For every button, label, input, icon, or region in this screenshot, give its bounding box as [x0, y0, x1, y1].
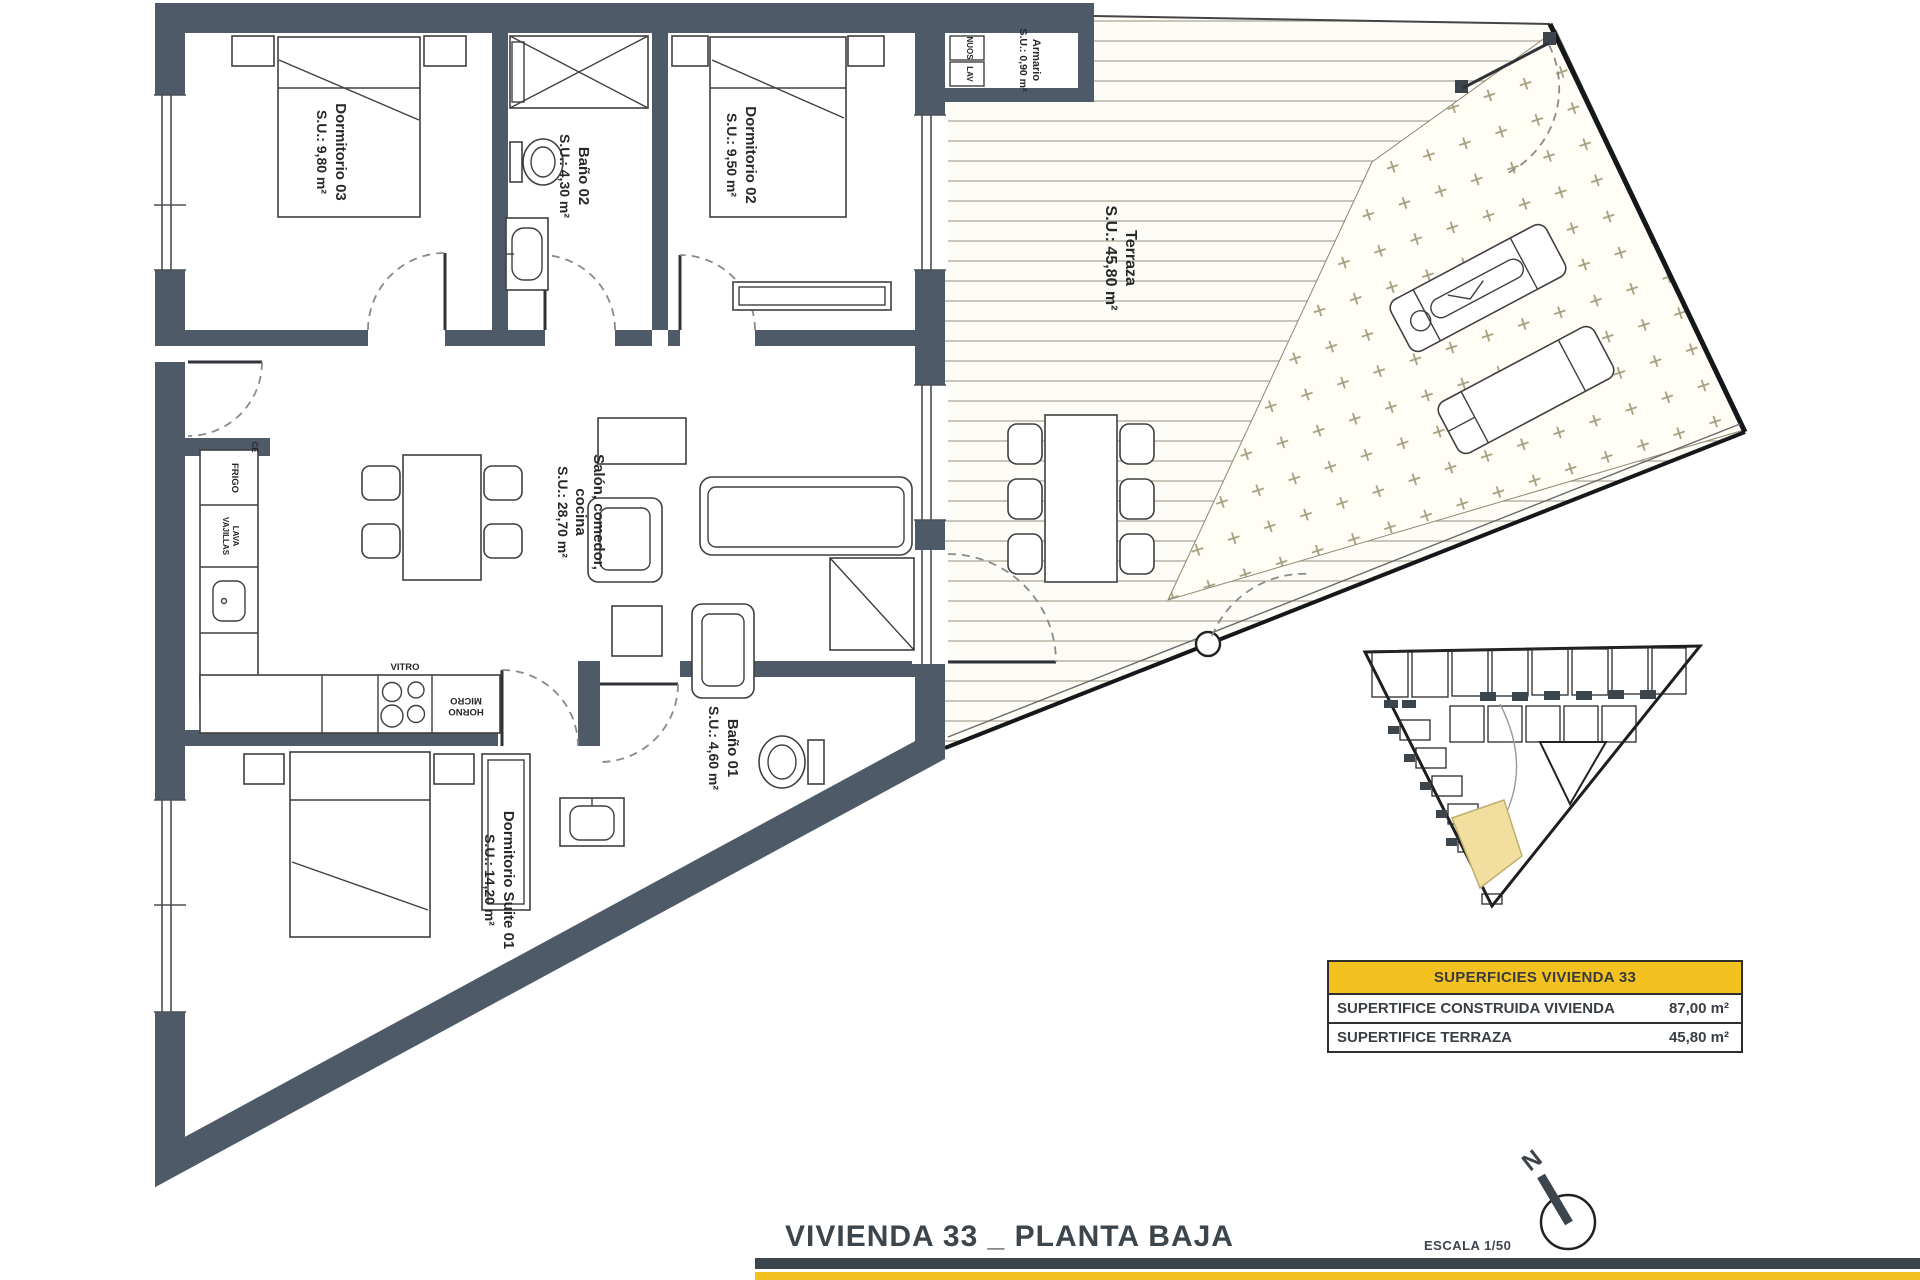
- surfaces-table: SUPERFICIES VIVIENDA 33 SUPERTIFICE CONS…: [1327, 960, 1743, 1053]
- table-row: SUPERTIFICE CONSTRUIDA VIVIENDA 87,00 m²: [1329, 995, 1741, 1024]
- lavavajillas-label-1: LAVA: [231, 526, 240, 547]
- svg-text:S.U.: 28,70 m²: S.U.: 28,70 m²: [555, 466, 571, 558]
- north-arrow-icon: N: [1517, 1145, 1595, 1249]
- terrace: Terraza S.U.: 45,80 m²: [945, 16, 1745, 748]
- nightstand: [848, 36, 884, 66]
- nuos-label: NUOS: [965, 36, 974, 60]
- horno-label-2: MICRO: [450, 695, 482, 706]
- svg-text:Armario: Armario: [1030, 39, 1042, 81]
- north-letter: N: [1517, 1145, 1547, 1177]
- window-dorm02-terrace: [912, 115, 948, 270]
- suite-wall-jog: [578, 661, 600, 746]
- svg-text:Baño 01: Baño 01: [724, 719, 741, 777]
- hall-wall: [445, 330, 545, 346]
- surface-value: 87,00 m²: [1669, 1000, 1729, 1017]
- title-accent-bar: [755, 1272, 1920, 1280]
- wall-bano02-dorm02: [652, 18, 668, 330]
- svg-text:Dormitorio 03: Dormitorio 03: [332, 103, 349, 201]
- toilet-icon: [510, 139, 563, 185]
- svg-text:cocina: cocina: [572, 488, 589, 536]
- bed: [290, 752, 430, 937]
- svg-text:S.U.: 4,30 m²: S.U.: 4,30 m²: [557, 134, 573, 218]
- surface-label: SUPERTIFICE CONSTRUIDA VIVIENDA: [1337, 1000, 1615, 1017]
- svg-text:S.U.: 14,20 m²: S.U.: 14,20 m²: [482, 834, 498, 926]
- terrace-dining-set: [1008, 415, 1154, 582]
- vitro-label: VITRO: [390, 662, 419, 673]
- window-suite: [152, 800, 188, 1012]
- coffee-table: [598, 418, 686, 464]
- sink-icon: [506, 218, 548, 290]
- shower-icon: [510, 36, 648, 108]
- sink-icon: [560, 798, 624, 846]
- hall-wall: [185, 330, 368, 346]
- terrace-name: Terraza: [1122, 230, 1139, 286]
- surface-value: 45,80 m²: [1669, 1029, 1729, 1046]
- surface-label: SUPERTIFICE TERRAZA: [1337, 1029, 1512, 1046]
- floor-plan-sheet: Terraza S.U.: 45,80 m² NUOS LAV Armario: [0, 0, 1920, 1280]
- sheet-title: VIVIENDA 33 _ PLANTA BAJA: [785, 1220, 1234, 1254]
- svg-text:S.U.: 9,80 m²: S.U.: 9,80 m²: [314, 110, 330, 194]
- svg-text:S.U.: 9,50 m²: S.U.: 9,50 m²: [724, 113, 740, 197]
- hall-wall: [668, 330, 680, 346]
- lavavajillas-label-2: VAJILLAS: [221, 517, 230, 556]
- svg-text:S.U.: 0,90 m²: S.U.: 0,90 m²: [1017, 28, 1029, 92]
- toilet-icon: [759, 736, 824, 788]
- svg-text:S.U.: 4,60 m²: S.U.: 4,60 m²: [706, 706, 722, 790]
- sofa: [700, 477, 912, 555]
- terrace-area: S.U.: 45,80 m²: [1102, 206, 1119, 311]
- site-key-plan: [1365, 646, 1700, 906]
- nightstand: [232, 36, 274, 66]
- surfaces-table-header: SUPERFICIES VIVIENDA 33: [1329, 962, 1741, 995]
- dresser: [733, 282, 891, 310]
- horno-label-1: HORNO: [448, 706, 483, 717]
- hall-wall: [615, 330, 652, 346]
- nightstand: [672, 36, 708, 66]
- title-divider-bar: [755, 1258, 1920, 1269]
- terrace-drain-circle: [1196, 632, 1220, 656]
- ce-label: CE: [250, 441, 259, 453]
- armchair: [692, 604, 754, 698]
- hall-wall: [755, 330, 915, 346]
- window-dorm03: [152, 95, 188, 270]
- entrance-opening: [152, 346, 188, 362]
- lav-label: LAV: [965, 66, 974, 82]
- side-table: [612, 606, 662, 656]
- svg-text:Salón, comedor,: Salón, comedor,: [590, 454, 607, 570]
- nightstand: [424, 36, 466, 66]
- svg-text:Baño 02: Baño 02: [575, 147, 592, 205]
- armario-room: NUOS LAV Armario S.U.: 0,90 m²: [930, 3, 1094, 102]
- svg-text:Dormitorio 02: Dormitorio 02: [742, 106, 759, 204]
- door-salon-terrace-opening: [912, 550, 948, 664]
- svg-text:Dormitorio Suite 01: Dormitorio Suite 01: [500, 811, 517, 949]
- nightstand: [244, 754, 284, 784]
- window-salon-terrace: [912, 385, 948, 520]
- nightstand: [434, 754, 474, 784]
- table-row: SUPERTIFICE TERRAZA 45,80 m²: [1329, 1024, 1741, 1051]
- closet-icon: [830, 558, 914, 650]
- frigo-label: FRIGO: [229, 463, 240, 493]
- scale-label: ESCALA 1/50: [1424, 1238, 1511, 1253]
- floor-plan-drawing: Terraza S.U.: 45,80 m² NUOS LAV Armario: [0, 0, 1920, 1280]
